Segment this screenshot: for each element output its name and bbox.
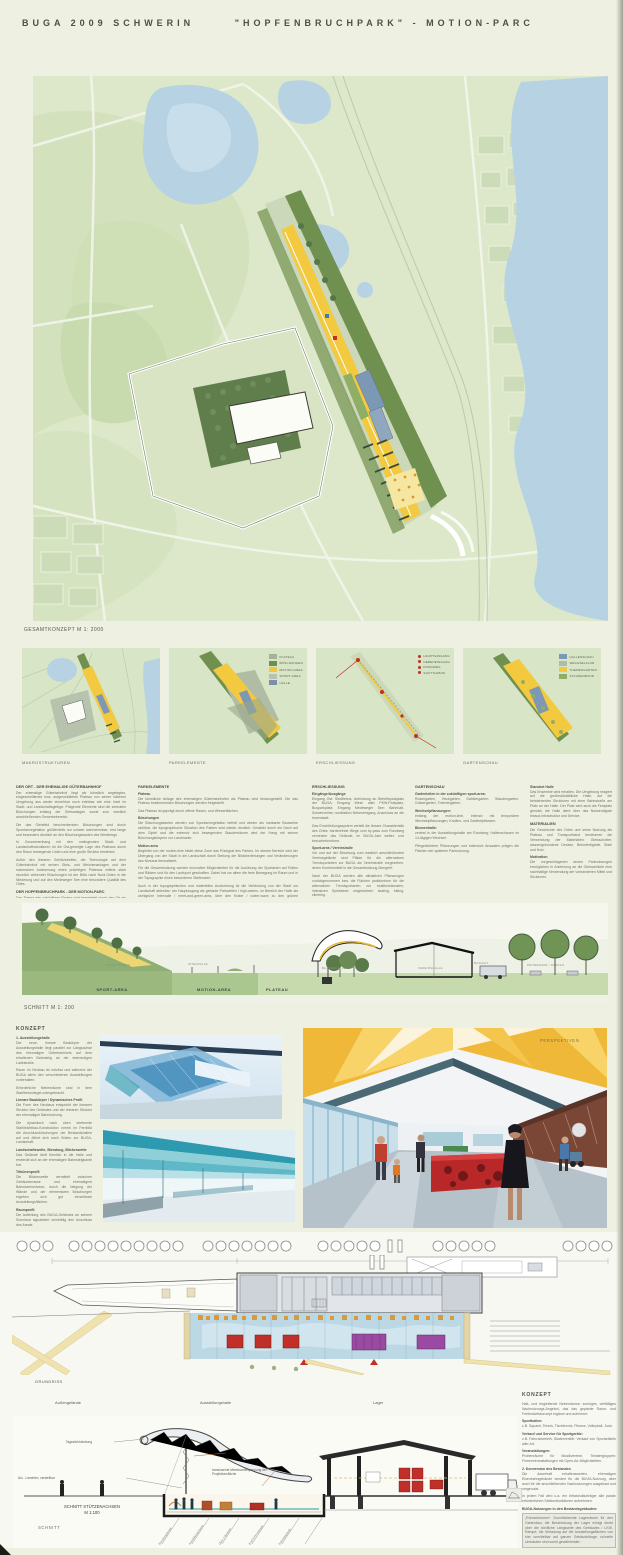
text-block: Außer den linearen Gehölzstreifen, der T… [16, 858, 126, 888]
legend-dot [418, 655, 421, 658]
text-block: Wechselpflanzungen: [415, 809, 519, 813]
legend-label: MOTION-AREA [279, 668, 302, 672]
plan-exhibit-purple [352, 1334, 386, 1350]
legend-swatch [559, 674, 567, 679]
gartenschau-legend: HALLENSCHAU WECHSELFLOR THEMENGÄRTEN STA… [559, 654, 597, 680]
masterplan-map [33, 76, 608, 621]
legend-label: THEMENGÄRTEN [569, 668, 597, 672]
konzept-column: KONZEPT 1. AusstellungshalleDer neue, li… [16, 1026, 92, 1230]
text-block: In jedem Fall wird u.a. ein Infrastruktu… [522, 1494, 616, 1504]
poster-title-left: BUGA 2009 SCHWERIN [22, 18, 194, 28]
text-block: Halt- und begleitende Nebenräume; sonnig… [522, 1402, 616, 1417]
text-block: Vor und auf der Böschung zum westlich an… [312, 851, 404, 871]
small-label-blumenhalle: BLUMENHALLE [322, 966, 346, 970]
legend-swatch [269, 661, 277, 666]
text-block: Auch in der topographischen und materiel… [138, 884, 298, 898]
panel-caption-makrostrukturen: MAKROSTRUKTUREN [22, 760, 70, 765]
section-100-caption-1: SCHNITT STÜTZENACHSEN [64, 1504, 120, 1509]
text-block: Sporthallen: [522, 1419, 616, 1423]
text-block: Verkauf und Service für Sportgeräte: [522, 1432, 616, 1436]
legend-label: HALLENSCHAU [569, 655, 593, 659]
erschliessung-legend: HAUPTEINGANG NEBENEINGANG RUNDWEG SHUTTL… [418, 654, 450, 676]
text-block: Die Aufteilung des BUGA-Geländes an sein… [16, 1213, 92, 1228]
panel-parkelemente: PLATEAU BÖSCHUNGEN MOTION-AREA SPORT-ARE… [169, 648, 307, 754]
panel-caption-gartenschau: GARTENSCHAU [463, 760, 498, 765]
legend-swatch [559, 654, 567, 659]
text-block: Für die Gesamtnutzung werden innovative … [138, 866, 298, 881]
plan-label-lager: Lager [373, 1400, 383, 1405]
text-column-gartenschau: GARTENSCHAUGartenteilen in der zukünftig… [415, 782, 519, 898]
plan-water-hall [184, 1313, 470, 1359]
small-label-sportfelder: SPORTFELDER [106, 963, 130, 967]
corner-mark [0, 1544, 11, 1555]
text-block: Lineare Baukörper / Dynamisches Profil [16, 1098, 92, 1102]
panel-caption-parkelemente: PARKELEMENTE [169, 760, 206, 765]
plan-shaft [370, 1255, 374, 1269]
text-block: PARKELEMENTE [138, 785, 298, 789]
panel-erschliessung: HAUPTEINGANG NEBENEINGANG RUNDWEG SHUTTL… [316, 648, 454, 754]
small-label-promenade: PROMENADE / PARKEN [527, 963, 564, 967]
text-block: DER ORT - DER EHEMALIGE GÜTERBAHNHOF [16, 785, 126, 789]
poster-title-right: "HOPFENBRUCHPARK" - MOTION-PARC [235, 18, 534, 28]
text-block: Das Plateau ist geprägt durch offene Ras… [138, 809, 298, 814]
text-block: Raum im Neubau ist nutzbar und während d… [16, 1068, 92, 1083]
text-block: Landschaftsweite, Biendung, Blickenweite [16, 1148, 92, 1152]
section-200-drawing: SPORTFELDER INTERVALLE BLUMENHALLE VEREI… [22, 903, 608, 1003]
render-interior [103, 1130, 295, 1222]
konzept-title: KONZEPT [16, 1026, 92, 1032]
plan-main-hall [237, 1273, 482, 1313]
text-block: Standort Halle [530, 785, 612, 789]
text-block: Die künstliche Anlage des ehemaligen Güt… [138, 797, 298, 807]
section-100-caption-3: SCHNITT [38, 1525, 60, 1530]
plan-exhibit-red [283, 1335, 299, 1348]
text-block: GARTENSCHAU [415, 785, 519, 789]
section100-pit [164, 1494, 324, 1516]
legend-swatch [559, 661, 567, 666]
text-block: Nach der BUGA werden alle attraktiven Pf… [312, 874, 404, 898]
konzept-blocks: 1. AusstellungshalleDer neue, lineare Ba… [16, 1036, 92, 1230]
text-block: zentral in der Ausstellungshalle am Rund… [415, 831, 519, 841]
konzept2-column: KONZEPT Halt- und begleitende Nebenräume… [522, 1392, 616, 1548]
text-block: Motivation [530, 855, 612, 859]
text-block: Die dynamisch nach oben strebende Stahll… [16, 1121, 92, 1146]
zone-label-motion-area: MOTION-AREA [197, 987, 231, 992]
panel-makrostrukturen-drawing [22, 648, 160, 754]
text-block: Die Blickenweite vermittelt zwischen Geb… [16, 1175, 92, 1205]
perspective-label: PERSPEKTIVEN [540, 1038, 579, 1043]
plan-railway-hatch [490, 1321, 610, 1351]
legend-label: HAUPTEINGANG [423, 654, 449, 658]
text-block: Das Erschließungssystem verteilt die lin… [312, 824, 404, 844]
legend-dot [418, 666, 421, 669]
text-block: Die Form des Neubaus entspricht der line… [16, 1103, 92, 1118]
text-block: Eingänge/Ausgänge [312, 792, 404, 796]
text-block: Das Gelände läuft förmlich in die Halle … [16, 1153, 92, 1168]
floor-plan-drawing [12, 1255, 612, 1375]
plan-exhibit-red [255, 1335, 271, 1348]
text-block: Motion-area [138, 844, 298, 848]
text-block: DER HOPFENBRUCHPARK - DER MOTION-PARC [16, 890, 126, 894]
konzept2-inset-sketch [506, 1488, 522, 1502]
masterplan-caption: GESAMTKONZEPT M 1: 2000 [24, 627, 104, 633]
zone-label-sport-area: SPORT-AREA [96, 987, 127, 992]
text-block: Probenräume für Musikvereine, Theatergru… [522, 1454, 616, 1464]
annotation-roof: Tageslichtdeckung [40, 1440, 92, 1444]
text-block: Sport-area / Vereinshalle [312, 846, 404, 850]
text-block: Gartenteilen in der zukünftigen sport-ar… [415, 792, 519, 796]
plan-label-aussengelaende: Außengelände [55, 1400, 81, 1405]
legend-label: PLATEAU [279, 655, 294, 659]
text-block: Pflegeleichtere Pflanzungen und extensiv… [415, 844, 519, 854]
legend-label: SHUTTLEBUS [423, 671, 445, 675]
plan-label-ausstellungshalle: Ausstellungshalle [200, 1400, 231, 1405]
text-column-parkelemente: PARKELEMENTEPlateauDie künstliche Anlage… [138, 782, 298, 898]
legend-swatch [269, 680, 277, 685]
text-block: Die Böschungskanten werden von Spontanve… [138, 821, 298, 841]
text-block: Tribünenprofil [16, 1170, 92, 1174]
text-block: „Rohrscheunen“: Durchfahrende Lagerräume… [522, 1513, 616, 1548]
legend-label: STAUDENBAND [569, 674, 594, 678]
text-block: Die dauerhaft erhaltenswerten, ehemalige… [522, 1472, 616, 1492]
legend-swatch [269, 667, 277, 672]
text-block: Erforderliche Nebenräume sind in dem Sta… [16, 1086, 92, 1096]
annotation-lamellen: Alu - Lamellen, verstellbar [18, 1476, 70, 1480]
text-block: ERSCHLIESSUNG [312, 785, 404, 789]
text-block: Rosengarten, Heckgarten, Dahliengarten, … [415, 797, 519, 807]
text-block: Böschungen [138, 816, 298, 820]
text-block: 2. Konversion des Bestandes [522, 1467, 616, 1471]
annotation-membran: transluzente Membranbespannung der Proje… [212, 1468, 268, 1476]
legend-swatch [269, 674, 277, 679]
konzept2-title: KONZEPT [522, 1392, 616, 1398]
text-column-erschliessung: ERSCHLIESSUNGEingänge/AusgängeEingang Os… [312, 782, 404, 898]
text-block: BUGA-Nutzungen in den Bestandsgebäuden: [522, 1507, 616, 1511]
small-label-vereinshalle: VEREINSHALLE [418, 966, 443, 970]
text-column-halle: Standort HalleDas Ensemble wird erhalten… [530, 782, 612, 898]
text-block: z.B. Squash, Tennis, Tischtennis, Fitnes… [522, 1424, 616, 1429]
text-block: Plateau [138, 792, 298, 796]
panel-caption-erschliessung: ERSCHLIESSUNG [316, 760, 355, 765]
legend-label: NEBENEINGANG [423, 660, 450, 664]
legend-label: WECHSELFLOR [569, 661, 594, 665]
render-perspective [303, 1028, 607, 1228]
legend-label: BÖSCHUNGEN [279, 661, 303, 665]
section-100-drawing: Böschungskante Ausstellungsebene Gleis 1… [14, 1416, 518, 1548]
legend-label: HALLE [279, 681, 290, 685]
poster-sheet: BUGA 2009 SCHWERIN "HOPFENBRUCHPARK" - M… [0, 0, 623, 1555]
text-column-ort: DER ORT - DER EHEMALIGE GÜTERBAHNHOFDer … [16, 782, 126, 898]
panel-makrostrukturen [22, 648, 160, 754]
small-label-intervalle: INTERVALLE [188, 962, 208, 966]
zone-label-plateau: PLATEAU [266, 987, 288, 992]
grundriss-caption: GRUNDRISS [35, 1379, 63, 1384]
section-200-caption: SCHNITT M 1: 200 [24, 1005, 74, 1011]
section-100-caption-2: M 1:100 [84, 1510, 100, 1515]
panel-gartenschau: HALLENSCHAU WECHSELFLOR THEMENGÄRTEN STA… [463, 648, 601, 754]
poster-title: BUGA 2009 SCHWERIN "HOPFENBRUCHPARK" - M… [22, 18, 534, 28]
text-block: Der neue, lineare Baukörper der Ausstell… [16, 1041, 92, 1066]
parkelemente-legend: PLATEAU BÖSCHUNGEN MOTION-AREA SPORT-ARE… [269, 654, 303, 687]
text-block: Das Ensemble wird erhalten. Die Umgebung… [530, 790, 612, 820]
perspective-background [398, 1123, 513, 1153]
text-block: Raumprofil [16, 1208, 92, 1212]
text-block: Die das Gleisfeld beschreibenden Böschun… [16, 823, 126, 838]
legend-label: SPORT-AREA [279, 674, 300, 678]
scan-edge-shadow [616, 0, 623, 1555]
text-block: z.B. Fahrradverleih, Skaterverleih; Verk… [522, 1437, 616, 1447]
plan-entrance-marker [370, 1359, 378, 1365]
text-block: Das Thema des zukünftigen Parkes wird he… [16, 896, 126, 898]
text-block: Der ehemalige Güterbahnhof liegt als kün… [16, 791, 126, 821]
text-block: Die Geschichte des Ortes und seine Nutzu… [530, 828, 612, 853]
text-block: 1. Ausstellungshalle [16, 1036, 92, 1040]
legend-label: RUNDWEG [423, 665, 440, 669]
konzept2-blocks: Halt- und begleitende Nebenräume; sonnig… [522, 1402, 616, 1548]
text-block: Die vorgeschlagenen neuen Parknutzungen … [530, 860, 612, 880]
legend-swatch [269, 654, 277, 659]
legend-swatch [559, 667, 567, 672]
render-exterior [100, 1035, 282, 1119]
small-label-bushalt: BUSHALT [474, 961, 489, 965]
text-block: Eingang Ost: Shuttlebus, Anbindung an Be… [312, 797, 404, 822]
text-block: Blumenhalle: [415, 826, 519, 830]
plan-shaft [380, 1255, 384, 1269]
plan-trees [250, 1365, 298, 1371]
text-block: Begleitet von der motion-linie bildet di… [138, 849, 298, 864]
plan-exhibit-purple [417, 1335, 445, 1349]
axis-bubbles-row [8, 1238, 616, 1254]
plan-left-wing [54, 1279, 237, 1311]
text-block: Veranstaltungen: [522, 1449, 616, 1453]
text-block: In Zusammenhang mit den umliegenden Stad… [16, 840, 126, 855]
text-block: MATERIALIEN [530, 822, 612, 826]
legend-dot [418, 660, 421, 663]
text-block: entlang der motion-linie, intensiv mit t… [415, 814, 519, 824]
legend-dot [418, 671, 421, 674]
plan-exhibit-red [227, 1335, 243, 1348]
